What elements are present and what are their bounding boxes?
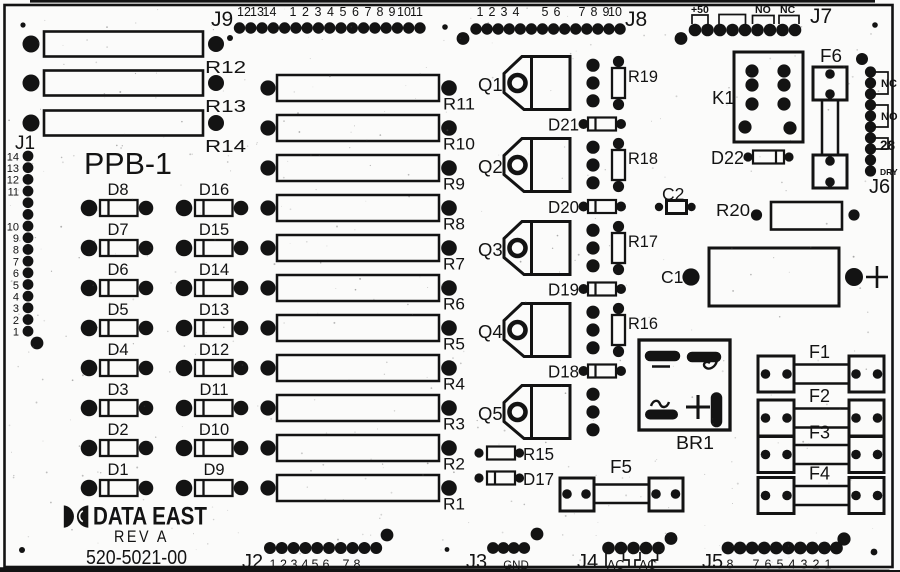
svg-text:D1: D1: [107, 461, 128, 479]
svg-text:DRY: DRY: [880, 167, 898, 177]
svg-text:D10: D10: [199, 421, 229, 439]
svg-text:D3: D3: [107, 381, 128, 399]
svg-text:GND: GND: [503, 560, 529, 572]
svg-text:8: 8: [377, 5, 384, 19]
svg-text:R4: R4: [443, 375, 465, 394]
svg-text:1: 1: [290, 5, 297, 19]
svg-text:F2: F2: [809, 385, 830, 406]
svg-text:4: 4: [327, 5, 334, 19]
svg-text:2: 2: [302, 5, 309, 19]
svg-text:R7: R7: [443, 255, 465, 274]
svg-text:5: 5: [777, 557, 784, 571]
svg-text:D14: D14: [199, 261, 229, 279]
svg-text:520-5021-00: 520-5021-00: [86, 546, 187, 569]
svg-text:D21: D21: [548, 115, 579, 135]
svg-text:R11: R11: [443, 95, 475, 114]
svg-text:R3: R3: [443, 415, 465, 434]
svg-text:7: 7: [365, 5, 372, 19]
svg-text:AC: AC: [639, 558, 656, 572]
svg-text:F1: F1: [809, 341, 830, 362]
svg-text:NC: NC: [881, 78, 897, 90]
svg-text:1: 1: [825, 557, 832, 571]
svg-text:9: 9: [389, 5, 396, 19]
svg-text:7: 7: [753, 557, 760, 571]
svg-text:D13: D13: [199, 301, 229, 319]
svg-text:2: 2: [489, 5, 496, 19]
svg-text:C1: C1: [661, 267, 683, 287]
svg-text:14: 14: [7, 151, 19, 163]
svg-text:J9: J9: [211, 8, 233, 31]
svg-text:Q3: Q3: [478, 239, 503, 260]
svg-text:R15: R15: [523, 444, 554, 464]
svg-text:6: 6: [323, 557, 330, 571]
svg-text:5: 5: [340, 5, 347, 19]
svg-text:12: 12: [237, 5, 251, 19]
svg-text:R5: R5: [443, 335, 465, 354]
svg-text:2: 2: [280, 557, 287, 571]
svg-text:D12: D12: [199, 341, 229, 359]
svg-text:R18: R18: [628, 150, 658, 168]
svg-text:8: 8: [591, 5, 598, 19]
svg-text:R1: R1: [443, 495, 465, 514]
svg-text:R2: R2: [443, 455, 465, 474]
svg-text:5: 5: [13, 280, 19, 292]
svg-text:R20: R20: [716, 200, 750, 220]
svg-text:8: 8: [727, 557, 734, 571]
svg-text:3: 3: [315, 5, 322, 19]
svg-text:3: 3: [291, 557, 298, 571]
svg-text:R12: R12: [205, 57, 246, 77]
svg-text:7: 7: [343, 557, 350, 571]
svg-text:5: 5: [542, 5, 549, 19]
svg-text:J5: J5: [702, 551, 723, 572]
svg-text:10: 10: [7, 221, 19, 233]
svg-text:D8: D8: [107, 181, 128, 199]
svg-text:3: 3: [501, 5, 508, 19]
svg-text:J7: J7: [810, 5, 832, 28]
svg-text:7: 7: [579, 5, 586, 19]
svg-text:1: 1: [13, 327, 19, 339]
svg-text:R8: R8: [443, 215, 465, 234]
svg-text:R14: R14: [205, 136, 246, 156]
svg-text:Q5: Q5: [478, 403, 503, 424]
svg-text:Q1: Q1: [478, 74, 503, 95]
svg-text:J2: J2: [242, 551, 263, 572]
svg-text:7: 7: [13, 256, 19, 268]
svg-text:REV A: REV A: [114, 527, 169, 546]
svg-text:12: 12: [7, 175, 19, 187]
svg-text:28: 28: [880, 138, 896, 153]
svg-text:D2: D2: [107, 421, 128, 439]
svg-text:J3: J3: [466, 551, 487, 572]
svg-text:4: 4: [13, 291, 19, 303]
svg-text:3: 3: [801, 557, 808, 571]
svg-text:R6: R6: [443, 295, 465, 314]
svg-text:4: 4: [513, 5, 520, 19]
svg-text:D20: D20: [548, 197, 579, 217]
svg-text:PPB-1: PPB-1: [84, 146, 172, 181]
svg-text:D11: D11: [199, 381, 228, 399]
svg-text:14: 14: [263, 5, 277, 19]
svg-text:Q2: Q2: [478, 156, 503, 177]
svg-text:BR1: BR1: [676, 432, 714, 453]
svg-text:5: 5: [312, 557, 319, 571]
svg-text:NO: NO: [755, 4, 771, 16]
svg-text:10: 10: [608, 5, 622, 19]
svg-text:F5: F5: [610, 456, 632, 477]
svg-text:3: 3: [13, 303, 19, 315]
svg-text:D16: D16: [199, 181, 229, 199]
svg-text:D4: D4: [107, 341, 128, 359]
svg-text:K1: K1: [712, 87, 735, 108]
svg-text:11: 11: [410, 5, 423, 19]
svg-text:11: 11: [8, 186, 19, 198]
svg-text:J6: J6: [869, 176, 890, 198]
svg-text:J8: J8: [625, 8, 647, 31]
svg-text:D18: D18: [548, 362, 579, 382]
svg-text:Q4: Q4: [478, 321, 503, 342]
svg-text:D9: D9: [203, 461, 224, 479]
svg-text:R9: R9: [443, 175, 465, 194]
svg-text:R16: R16: [628, 315, 658, 333]
svg-text:F4: F4: [809, 463, 830, 484]
svg-text:J4: J4: [577, 551, 598, 572]
svg-text:6: 6: [554, 5, 561, 19]
svg-text:9: 9: [13, 233, 19, 245]
svg-text:8: 8: [13, 245, 19, 257]
svg-text:D6: D6: [107, 261, 128, 279]
svg-text:4: 4: [302, 557, 309, 571]
svg-text:6: 6: [352, 5, 359, 19]
svg-text:D19: D19: [548, 280, 579, 300]
svg-text:R17: R17: [628, 233, 658, 251]
svg-text:D15: D15: [199, 221, 229, 239]
svg-text:1: 1: [270, 557, 277, 571]
svg-text:6: 6: [13, 268, 19, 280]
svg-text:NO: NO: [881, 111, 898, 123]
svg-text:F3: F3: [809, 422, 830, 443]
svg-text:4: 4: [789, 557, 796, 571]
svg-text:2: 2: [813, 557, 820, 571]
svg-text:F6: F6: [820, 45, 842, 66]
svg-text:D5: D5: [107, 301, 128, 319]
svg-text:2: 2: [13, 315, 19, 327]
svg-text:D22: D22: [711, 148, 744, 168]
svg-text:8: 8: [354, 557, 361, 571]
svg-text:R10: R10: [443, 135, 475, 154]
svg-text:6: 6: [765, 557, 772, 571]
svg-text:+50: +50: [691, 4, 709, 16]
svg-text:NC: NC: [780, 4, 796, 16]
svg-text:10: 10: [397, 5, 411, 19]
svg-text:1: 1: [477, 5, 484, 19]
svg-text:AC: AC: [607, 558, 624, 572]
svg-text:D17: D17: [523, 469, 554, 489]
svg-text:R19: R19: [628, 68, 658, 86]
svg-text:D7: D7: [107, 221, 128, 239]
svg-text:R13: R13: [205, 96, 246, 116]
svg-text:13: 13: [7, 163, 19, 175]
